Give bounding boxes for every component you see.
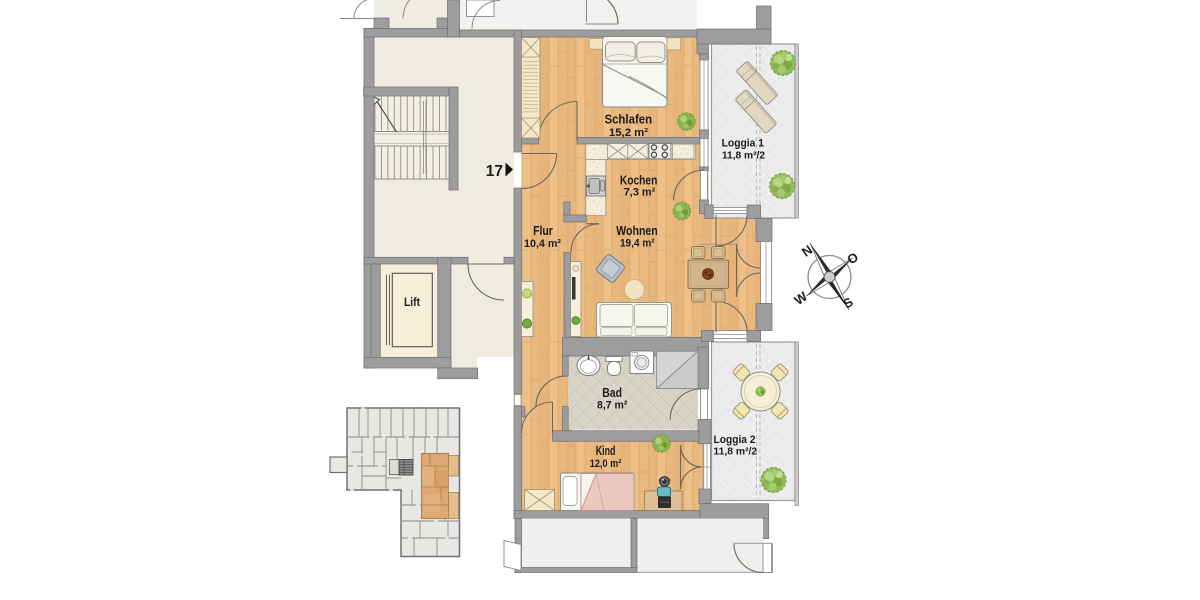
svg-text:Loggia 1: Loggia 1 (722, 138, 764, 150)
svg-text:Lift: Lift (404, 295, 420, 309)
svg-text:15,2 m²: 15,2 m² (609, 127, 648, 139)
svg-text:Kochen: Kochen (620, 173, 658, 188)
svg-text:12,0 m²: 12,0 m² (590, 458, 622, 470)
svg-text:10,4 m²: 10,4 m² (524, 238, 561, 250)
svg-text:Wohnen: Wohnen (616, 223, 657, 238)
svg-text:11,8 m²/2: 11,8 m²/2 (722, 151, 766, 162)
svg-text:Schlafen: Schlafen (604, 112, 652, 127)
svg-text:Loggia 2: Loggia 2 (714, 434, 756, 446)
svg-text:Bad: Bad (602, 385, 622, 400)
svg-text:Flur: Flur (533, 223, 553, 238)
svg-text:19,4 m²: 19,4 m² (620, 237, 655, 249)
svg-text:Kind: Kind (596, 443, 616, 458)
svg-text:8,7 m²: 8,7 m² (597, 400, 628, 412)
svg-text:11,8 m²/2: 11,8 m²/2 (713, 447, 757, 458)
svg-text:17: 17 (486, 163, 503, 180)
svg-text:7,3 m²: 7,3 m² (624, 187, 656, 199)
